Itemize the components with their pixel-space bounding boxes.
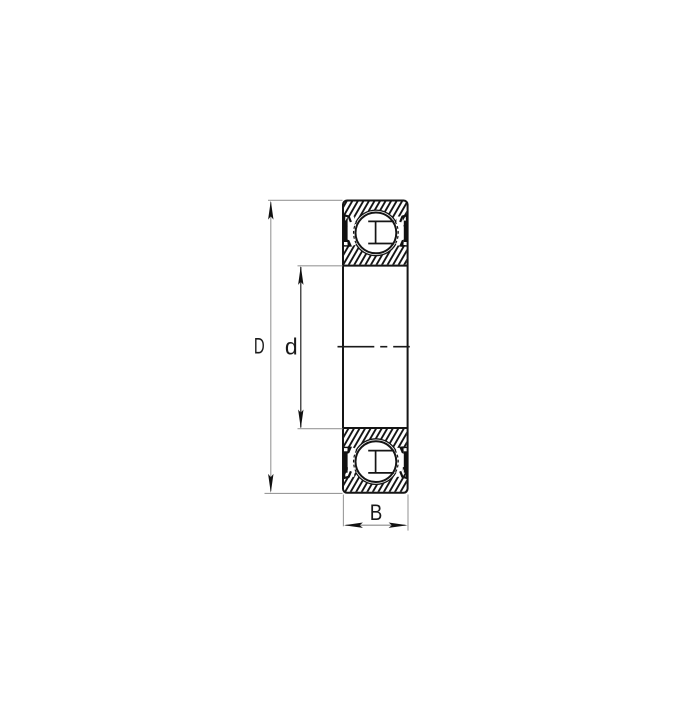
svg-text:D: D (254, 334, 265, 359)
svg-text:d: d (285, 333, 298, 359)
svg-text:B: B (370, 500, 383, 525)
